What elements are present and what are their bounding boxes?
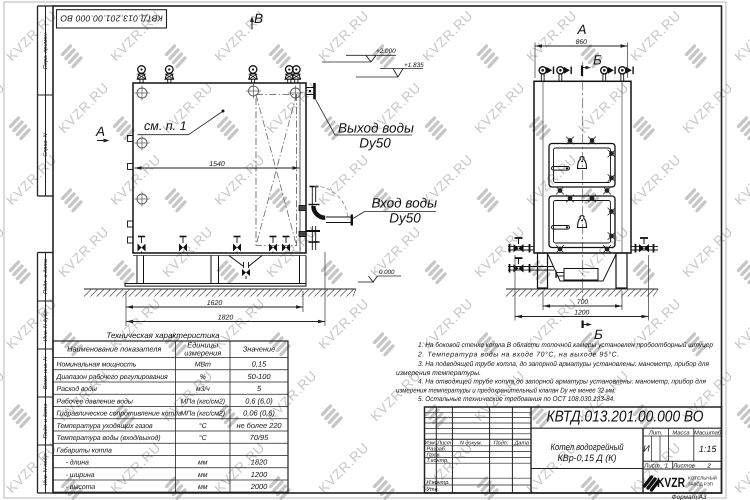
- svg-text:3. На подводящей трубе котла,: 3. На подводящей трубе котла, до запорно…: [418, 360, 709, 368]
- svg-text:измерения температуры и предох: измерения температуры и предохранительны…: [396, 387, 616, 395]
- svg-text:измерения температуры.: измерения температуры.: [396, 370, 481, 377]
- svg-text:%: %: [200, 374, 206, 381]
- svg-text:50-100: 50-100: [247, 372, 271, 381]
- svg-text:Взам. инв. N: Взам. инв. N: [43, 356, 49, 390]
- svg-text:Dy50: Dy50: [389, 211, 421, 226]
- svg-text:1. На боковой стенке котла В: 1. На боковой стенке котла В области топ…: [418, 341, 713, 349]
- svg-text:Т.контр.: Т.контр.: [427, 458, 449, 464]
- svg-text:4. На отводящей трубе котла,д: 4. На отводящей трубе котла,до запорной …: [418, 378, 706, 386]
- svg-text:0,15: 0,15: [252, 360, 267, 369]
- svg-text:мм: мм: [198, 484, 208, 491]
- svg-text:2: 2: [706, 462, 711, 469]
- svg-text:А: А: [95, 124, 105, 139]
- svg-text:°С: °С: [199, 423, 208, 430]
- svg-text:1200: 1200: [574, 309, 589, 316]
- svg-text:1: 1: [665, 462, 668, 469]
- svg-text:N докум.: N докум.: [460, 440, 482, 446]
- svg-text:И: И: [643, 444, 650, 454]
- svg-text:0,06 (0,6): 0,06 (0,6): [243, 409, 275, 418]
- svg-text:700: 700: [577, 299, 589, 306]
- svg-text:1820: 1820: [218, 314, 234, 321]
- svg-text:0,6 (6,0): 0,6 (6,0): [245, 396, 273, 405]
- svg-text:Изм.: Изм.: [425, 440, 437, 446]
- svg-text:измерения: измерения: [184, 349, 221, 358]
- svg-text:Рабочее давление воды: Рабочее давление воды: [57, 397, 134, 405]
- svg-text:Б: Б: [593, 53, 602, 68]
- svg-text:Наименование показателя: Наименование показателя: [67, 345, 161, 354]
- svg-text:мм: мм: [198, 472, 208, 479]
- svg-text:Масса: Масса: [672, 430, 690, 436]
- svg-text:1:15: 1:15: [699, 444, 718, 454]
- svg-text:Листов: Листов: [672, 462, 695, 469]
- svg-text:МВт: МВт: [195, 362, 211, 369]
- svg-text:Лист: Лист: [436, 440, 452, 446]
- svg-text:°С: °С: [199, 435, 208, 442]
- svg-text:0.000: 0.000: [379, 269, 395, 276]
- svg-text:Лист: Лист: [643, 462, 659, 469]
- svg-text:см. п. 1: см. п. 1: [144, 119, 187, 133]
- svg-text:МПа (кгс/см2): МПа (кгс/см2): [181, 397, 225, 405]
- svg-text:70/95: 70/95: [250, 433, 269, 442]
- svg-text:КВр-0,15 Д (К): КВр-0,15 Д (К): [558, 453, 617, 463]
- svg-text:КВТД.013.201.00.000 ВО: КВТД.013.201.00.000 ВО: [547, 408, 704, 425]
- svg-text:Температура уходящих газов: Температура уходящих газов: [57, 422, 153, 430]
- svg-text:Вход воды: Вход воды: [372, 196, 438, 211]
- svg-text:КОТЕЛЬНЫЙ: КОТЕЛЬНЫЙ: [688, 476, 717, 481]
- svg-text:Формат А3: Формат А3: [672, 494, 707, 500]
- svg-text:- ширина: - ширина: [57, 472, 95, 479]
- svg-text:+1.835: +1.835: [404, 62, 424, 69]
- svg-text:Номинальная мощность: Номинальная мощность: [57, 362, 137, 369]
- svg-text:Выход воды: Выход воды: [338, 121, 414, 136]
- svg-text:м3/ч: м3/ч: [196, 385, 210, 393]
- svg-text:Подп.: Подп.: [494, 440, 509, 446]
- svg-text:Dy50: Dy50: [359, 136, 391, 151]
- svg-text:Температура воды (вход/выход): Температура воды (вход/выход): [57, 434, 161, 442]
- svg-text:Перв. примен.: Перв. примен.: [43, 32, 49, 69]
- svg-text:Значение: Значение: [243, 345, 275, 354]
- svg-text:Инв. N подл.: Инв. N подл.: [42, 453, 49, 486]
- svg-text:КВТД.013.201.00.000 ВО: КВТД.013.201.00.000 ВО: [60, 14, 163, 24]
- svg-text:Утв.: Утв.: [426, 487, 440, 493]
- svg-text:1620: 1620: [207, 300, 223, 307]
- svg-text:+2.000: +2.000: [376, 48, 396, 55]
- svg-text:Н.контр.: Н.контр.: [427, 480, 450, 486]
- svg-text:1200: 1200: [251, 470, 268, 479]
- svg-text:860: 860: [576, 39, 588, 46]
- svg-text:5. Остальные технические треб: 5. Остальные технические требования по О…: [418, 395, 615, 403]
- svg-text:Гидравлическое сопротивление к: Гидравлическое сопротивление котла: [57, 410, 182, 418]
- svg-text:ЗАВОД РЭП: ЗАВОД РЭП: [688, 482, 713, 487]
- svg-text:Техническая характеристика: Техническая характеристика: [106, 331, 220, 340]
- svg-text:Лит.: Лит.: [648, 430, 663, 436]
- svg-text:1820: 1820: [251, 458, 268, 467]
- svg-text:Расход воды: Расход воды: [57, 385, 98, 393]
- svg-text:- высота: - высота: [57, 484, 96, 491]
- svg-text:2. Температура воды на входе: 2. Температура воды на входе 70°С, на вы…: [417, 352, 619, 359]
- svg-text:не более 220: не более 220: [236, 421, 282, 430]
- svg-text:Инв. N дубл.: Инв. N дубл.: [42, 309, 49, 341]
- svg-text:Подп. и дата: Подп. и дата: [42, 259, 49, 294]
- svg-text:Габариты котла: Габариты котла: [57, 446, 113, 454]
- svg-text:Масштаб: Масштаб: [694, 429, 722, 436]
- svg-text:- длина: - длина: [57, 459, 89, 467]
- svg-text:В: В: [254, 11, 263, 26]
- svg-text:мм: мм: [198, 460, 208, 467]
- svg-text:Справ. N: Справ. N: [43, 132, 49, 156]
- svg-text:Котел водогрейный: Котел водогрейный: [551, 442, 624, 452]
- svg-text:А: А: [576, 22, 586, 37]
- svg-text:Б: Б: [594, 327, 603, 342]
- svg-text:1540: 1540: [209, 161, 225, 168]
- svg-text:Дата: Дата: [513, 440, 529, 446]
- svg-text:Подп. и дата: Подп. и дата: [42, 403, 49, 438]
- svg-text:Диапазон рабочего регулировани: Диапазон рабочего регулирования: [56, 373, 169, 381]
- svg-text:МПа (кгс/см2): МПа (кгс/см2): [181, 410, 225, 418]
- svg-text:2000: 2000: [250, 482, 268, 491]
- svg-text:KVZR: KVZR: [657, 475, 685, 490]
